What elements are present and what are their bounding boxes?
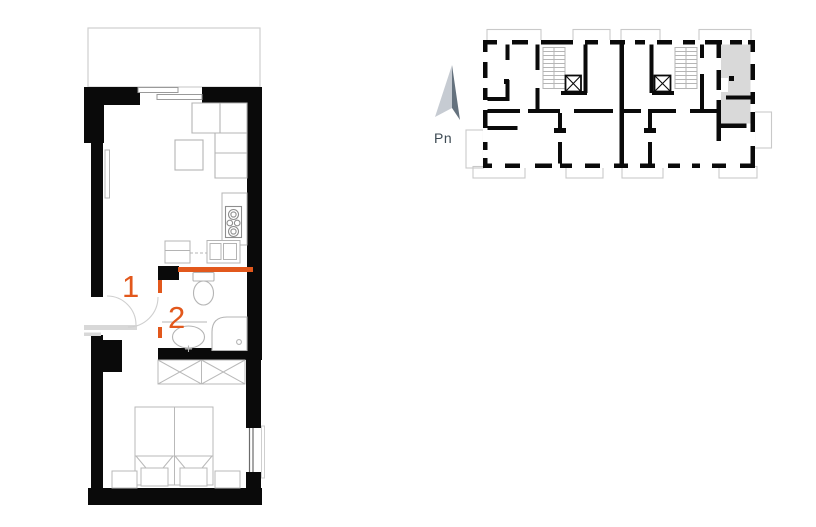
kitchen-counter	[222, 193, 247, 245]
bedroom-window	[250, 426, 265, 478]
apartment-plan: 1 2	[84, 28, 265, 505]
radiator	[105, 150, 110, 198]
kitchen-cabinets	[165, 241, 240, 264]
nightstand-right	[215, 471, 240, 488]
coffee-table	[175, 140, 203, 170]
room-label-2: 2	[168, 300, 185, 335]
nightstand-left	[112, 471, 137, 488]
wardrobe	[158, 360, 245, 384]
highlighted-unit	[721, 45, 751, 124]
balcony	[88, 28, 260, 87]
staircase-1	[543, 48, 565, 89]
highlighted-wall-upper	[158, 280, 162, 293]
elevator-2	[655, 76, 671, 92]
north-label: Pn	[434, 130, 452, 146]
floor-plan-page: 1 2	[0, 0, 816, 527]
staircase-2	[675, 48, 697, 89]
overview-outer-walls	[483, 40, 755, 168]
north-arrow-dark-face	[452, 65, 460, 120]
elevator-1	[566, 76, 582, 92]
building-overview	[466, 30, 772, 179]
room-label-1: 1	[122, 269, 139, 304]
kitchen-sink	[207, 241, 240, 264]
highlighted-wall-lower	[158, 327, 162, 338]
bed	[135, 407, 213, 486]
overview-inner-walls	[488, 45, 751, 164]
shower	[212, 317, 247, 351]
overview-window-gaps	[483, 40, 755, 168]
highlighted-wall-horizontal	[178, 267, 253, 272]
north-arrow-light-face	[435, 65, 452, 117]
balcony-sliding-door	[138, 88, 202, 100]
north-arrow: Pn	[434, 65, 460, 146]
toilet	[193, 273, 214, 306]
